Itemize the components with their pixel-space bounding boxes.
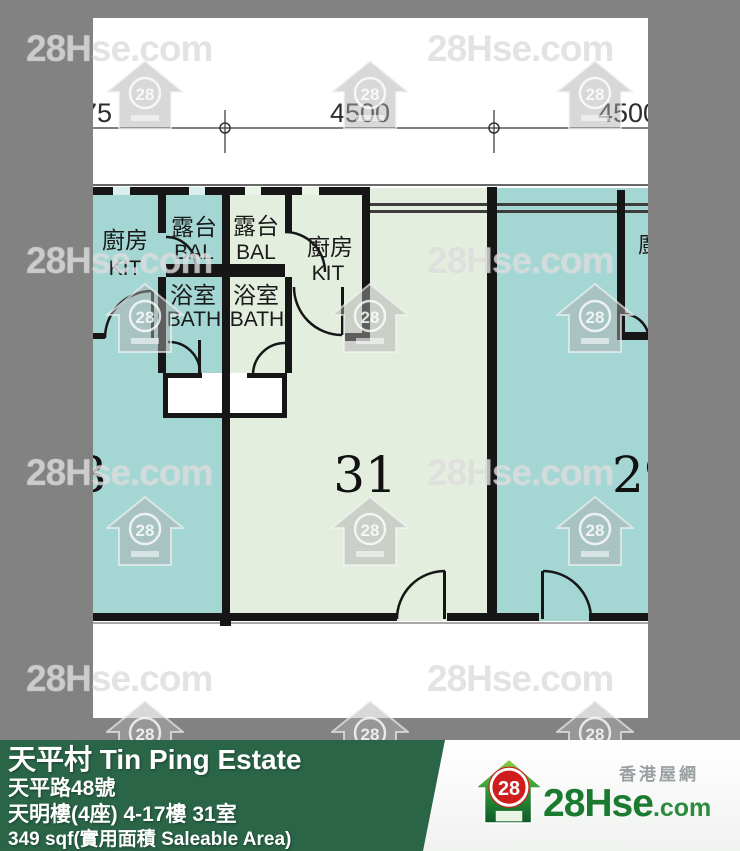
svg-text:28: 28 bbox=[361, 725, 380, 740]
middle-bath-label-zh: 浴室 bbox=[233, 282, 279, 308]
logo-panel: 28 28Hse.com 香港屋網 bbox=[423, 740, 740, 851]
left-kitchen-label-en: KIT bbox=[109, 257, 142, 280]
middle-bath-label-en: BATH bbox=[230, 308, 284, 331]
left-bath-label-zh: 浴室 bbox=[170, 282, 216, 308]
dimension-line: 75 4500 4500 bbox=[93, 98, 648, 153]
left-bath-label-en: BATH bbox=[167, 308, 221, 331]
right-kitchen-label-zh: 廚房 bbox=[638, 231, 648, 257]
floor-plan: 75 4500 4500 bbox=[93, 18, 648, 718]
estate-area: 349 sqf(實用面積 Saleable Area) bbox=[8, 828, 302, 851]
estate-name: 天平村 Tin Ping Estate bbox=[8, 743, 302, 776]
left-kitchen-label-zh: 廚房 bbox=[102, 227, 148, 253]
estate-block-floor-unit: 天明樓(4座) 4-17樓 31室 bbox=[8, 802, 302, 828]
svg-text:28: 28 bbox=[586, 725, 605, 740]
screenshot-root: 75 4500 4500 bbox=[0, 0, 740, 851]
info-bar: 天平村 Tin Ping Estate 天平路48號 天明樓(4座) 4-17樓… bbox=[0, 740, 740, 851]
dimension-label-right: 4500 bbox=[598, 98, 648, 128]
dimension-label-left: 75 bbox=[93, 98, 112, 128]
logo-text-main: 28Hse bbox=[543, 782, 653, 825]
logo-badge-number: 28 bbox=[498, 778, 520, 800]
unit-number-middle: 31 bbox=[333, 446, 397, 504]
unit-number-left: 3 bbox=[93, 446, 107, 504]
left-balcony-label-zh: 露台 bbox=[171, 214, 217, 240]
svg-text:28: 28 bbox=[136, 725, 155, 740]
site-name-chinese: 香港屋網 bbox=[619, 760, 699, 785]
dimension-label-middle: 4500 bbox=[330, 98, 390, 128]
middle-kitchen-label-en: KIT bbox=[312, 262, 345, 285]
logo-text-suffix: .com bbox=[653, 794, 711, 822]
logo-wordmark: 28Hse.com bbox=[543, 782, 711, 826]
property-info: 天平村 Tin Ping Estate 天平路48號 天明樓(4座) 4-17樓… bbox=[8, 743, 302, 851]
middle-balcony-label-zh: 露台 bbox=[233, 213, 279, 239]
estate-address: 天平路48號 bbox=[8, 776, 302, 802]
middle-kitchen-label-zh: 廚房 bbox=[307, 234, 353, 260]
middle-balcony-label-en: BAL bbox=[236, 241, 276, 264]
unit-number-right: 29 bbox=[612, 446, 648, 504]
28hse-house-logo-icon: 28 bbox=[473, 756, 545, 826]
left-balcony-label-en: BAL bbox=[174, 241, 214, 264]
